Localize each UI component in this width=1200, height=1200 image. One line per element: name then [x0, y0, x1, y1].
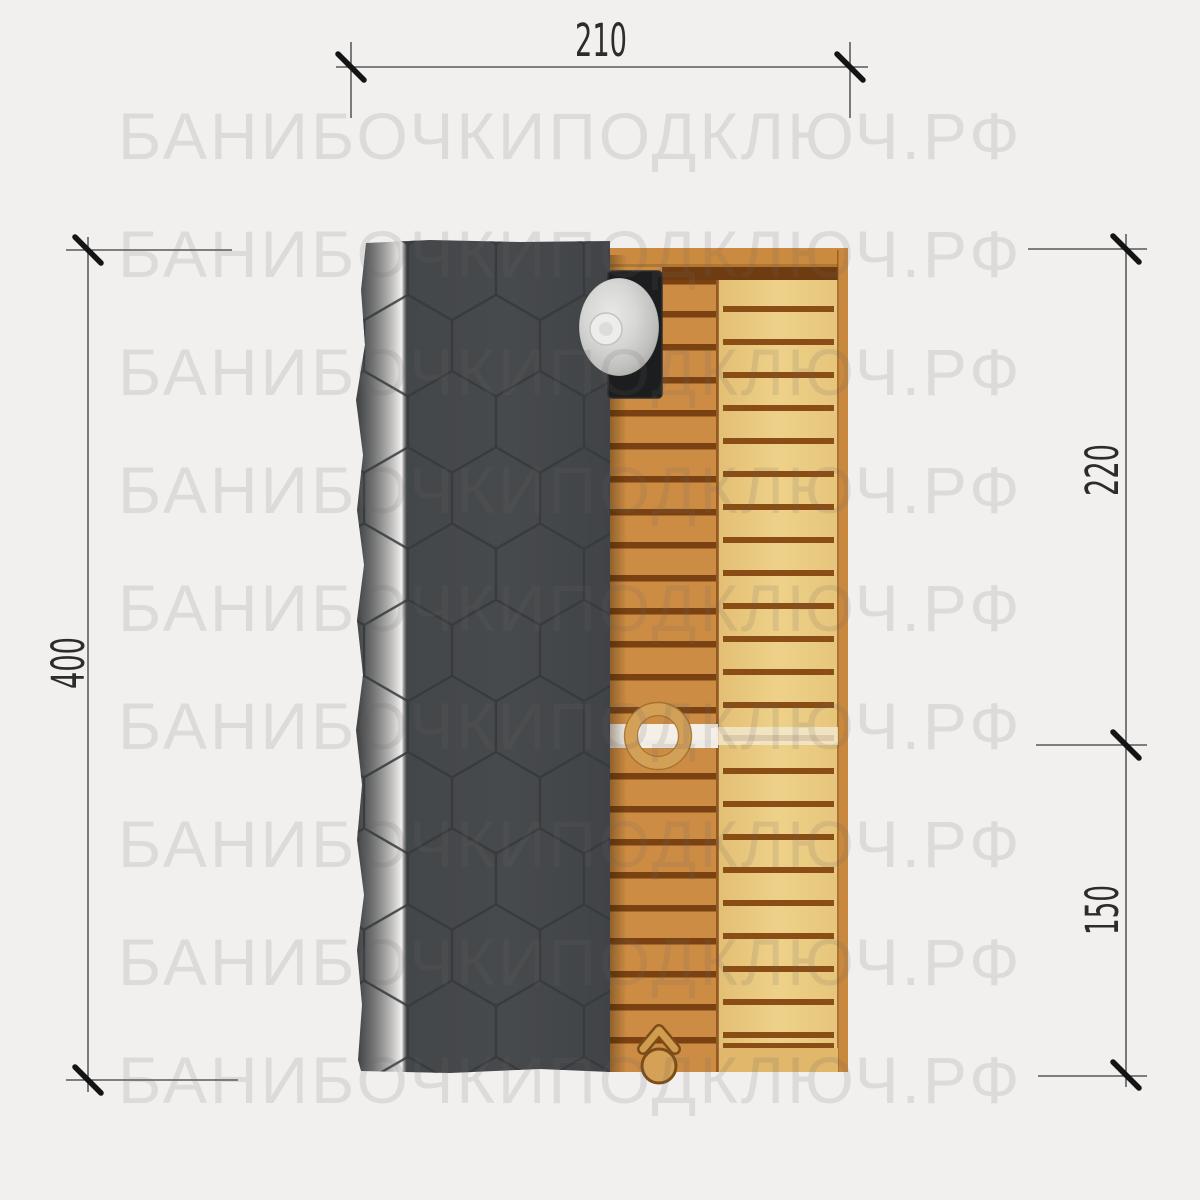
dimension-left: 400 — [42, 237, 238, 1093]
right-frame — [838, 250, 848, 1072]
dim-top-label: 210 — [575, 14, 627, 67]
joist-gap — [716, 266, 720, 1072]
roof — [356, 240, 627, 1073]
bottom-latch-knob — [642, 1049, 676, 1083]
plan-drawing: 210 400 220 150 — [0, 0, 1200, 1200]
dimension-top: 210 — [336, 14, 868, 118]
bottom-frame — [719, 1048, 838, 1072]
dim-right-upper-label: 220 — [1076, 444, 1129, 496]
chimney-pipe-hole — [599, 322, 613, 336]
top-wide-gap — [662, 267, 838, 280]
right-frame-edge — [837, 250, 839, 1072]
dim-left-label: 400 — [42, 637, 95, 689]
dim-right-lower-label: 150 — [1076, 885, 1129, 935]
dimension-right: 220 150 — [1028, 234, 1147, 1088]
top-frame-shadow-line — [606, 264, 848, 267]
drawing-canvas: 210 400 220 150 БАНИБОЧКИПОДКЛЮЧ.РФ БАНИ… — [0, 0, 1200, 1200]
shingle-pattern — [356, 240, 610, 1073]
threshold-board-right — [718, 727, 838, 745]
deck-plank-gaps — [723, 283, 834, 1048]
